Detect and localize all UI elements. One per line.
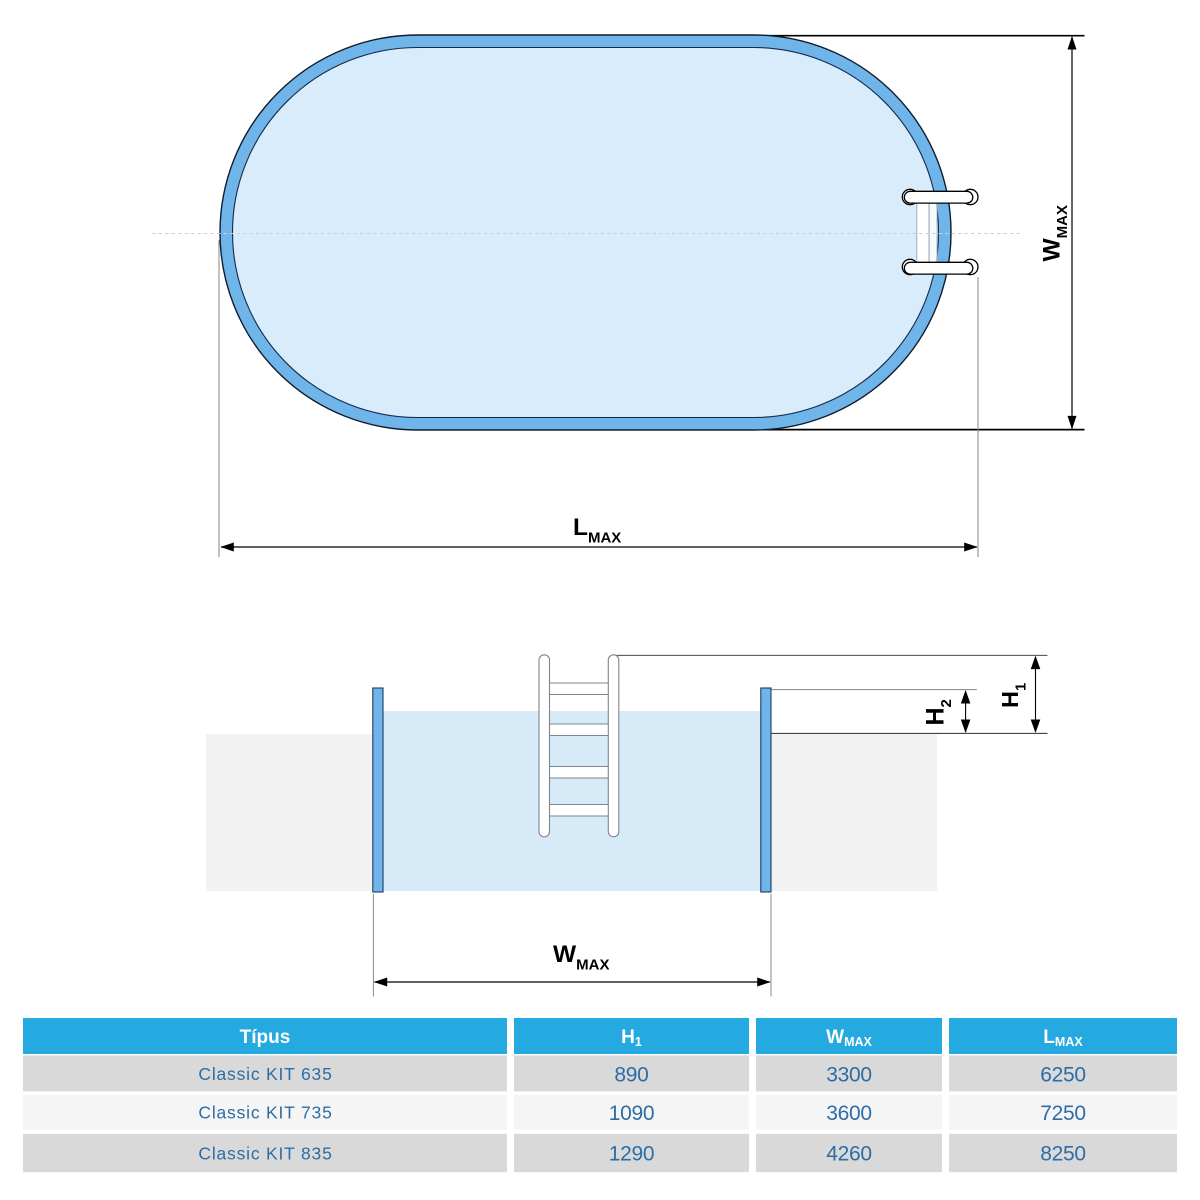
svg-text:6250: 6250 (1040, 1064, 1086, 1087)
svg-text:1090: 1090 (609, 1102, 655, 1125)
svg-text:Classic KIT 635: Classic KIT 635 (198, 1064, 332, 1084)
svg-text:890: 890 (614, 1064, 648, 1087)
svg-text:3600: 3600 (826, 1102, 872, 1125)
svg-text:7250: 7250 (1040, 1102, 1086, 1125)
svg-text:1290: 1290 (609, 1143, 655, 1166)
svg-text:4260: 4260 (826, 1143, 872, 1166)
svg-text:3300: 3300 (826, 1064, 872, 1087)
svg-text:Típus: Típus (240, 1027, 291, 1048)
svg-text:Classic KIT 735: Classic KIT 735 (198, 1103, 332, 1123)
svg-text:Classic KIT 835: Classic KIT 835 (198, 1144, 332, 1164)
svg-text:8250: 8250 (1040, 1143, 1086, 1166)
